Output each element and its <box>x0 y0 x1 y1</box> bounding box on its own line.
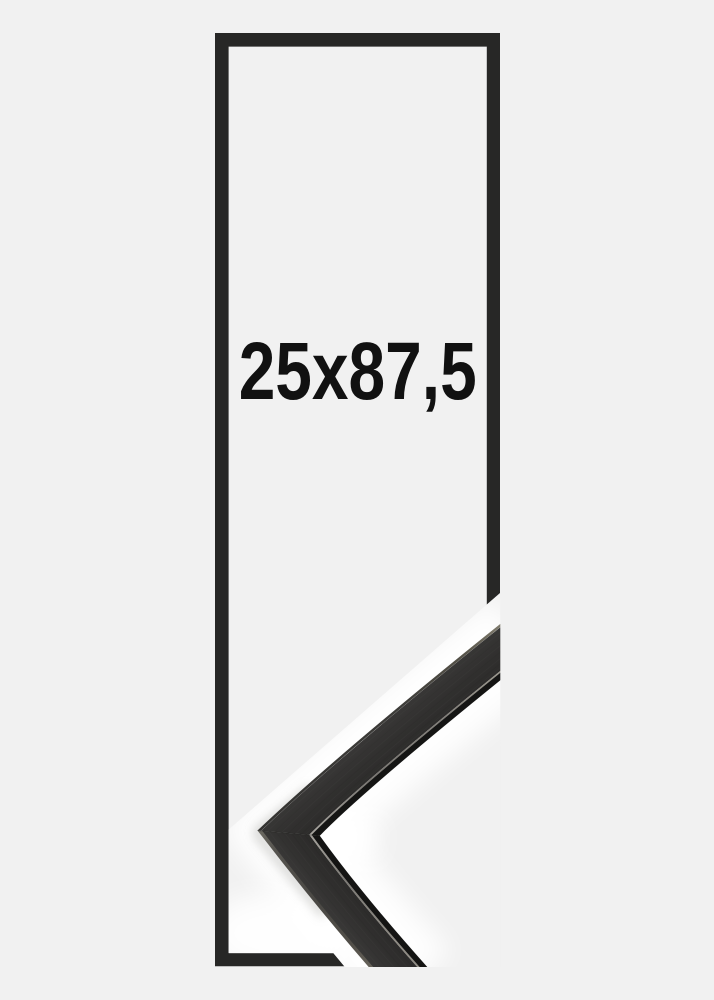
svg-text:25x87,5: 25x87,5 <box>239 326 477 417</box>
